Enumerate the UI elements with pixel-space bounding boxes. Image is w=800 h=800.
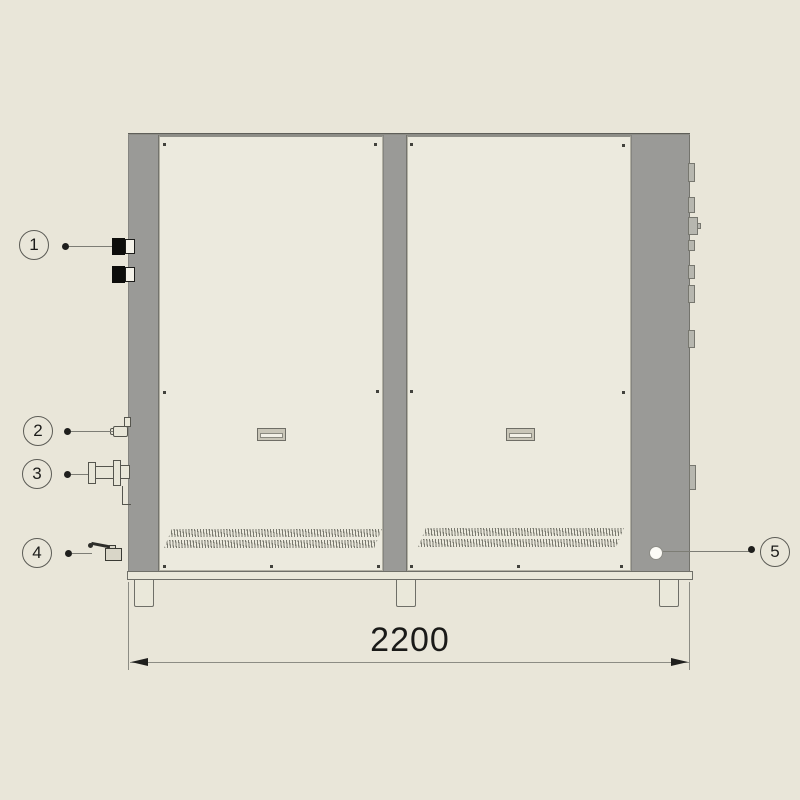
leader-line-2 <box>71 431 113 432</box>
vent-grille-right <box>418 528 624 547</box>
coupling-drain-line-v <box>122 486 123 505</box>
screw <box>622 144 625 147</box>
leader-dot-4 <box>65 550 72 557</box>
coupling-stub <box>120 465 130 479</box>
foot-right <box>659 580 679 607</box>
round-port <box>649 546 663 560</box>
callout-label-1: 1 <box>29 235 38 255</box>
leader-line-3 <box>71 474 88 475</box>
screw <box>163 143 166 146</box>
hinge-tab <box>688 285 695 303</box>
drain-nozzle <box>113 426 128 437</box>
screw <box>376 390 379 393</box>
foot-left <box>134 580 154 607</box>
dimension-line <box>130 662 689 663</box>
screw <box>374 143 377 146</box>
hinge-tab <box>688 197 695 213</box>
leader-line-5 <box>663 551 749 552</box>
dimension-extension-right <box>689 582 690 670</box>
callout-label-2: 2 <box>33 421 42 441</box>
coupling-pipe <box>95 466 115 479</box>
screw <box>517 565 520 568</box>
callout-balloon-2: 2 <box>23 416 53 446</box>
hinge-tab <box>688 330 695 348</box>
screw <box>622 391 625 394</box>
leader-dot-5 <box>748 546 755 553</box>
valve-nub <box>109 545 116 549</box>
callout-label-5: 5 <box>770 542 779 562</box>
callout-balloon-3: 3 <box>22 459 52 489</box>
callout-balloon-1: 1 <box>19 230 49 260</box>
dimension-extension-left <box>128 582 129 670</box>
valve-lever-ball <box>88 543 93 548</box>
connector-block-top <box>112 238 125 255</box>
callout-label-4: 4 <box>32 543 41 563</box>
base-rail <box>127 571 693 580</box>
leader-line-4 <box>72 553 92 554</box>
frame-column-left <box>128 135 159 571</box>
technical-drawing-canvas: 1 2 3 4 5 2200 <box>0 0 800 800</box>
screw <box>410 565 413 568</box>
leader-line-1 <box>67 246 112 247</box>
hinge-tab <box>688 265 695 279</box>
screw <box>410 390 413 393</box>
callout-balloon-5: 5 <box>760 537 790 567</box>
dimension-text: 2200 <box>370 621 450 659</box>
leader-dot-1 <box>62 243 69 250</box>
screw <box>620 565 623 568</box>
screw <box>270 565 273 568</box>
hinge-tab <box>689 465 696 490</box>
screw <box>377 565 380 568</box>
dimension-arrow-left <box>131 658 148 666</box>
foot-center <box>396 580 416 607</box>
screw <box>410 143 413 146</box>
latch-nub <box>697 223 701 229</box>
dimension-value: 2200 <box>330 621 490 660</box>
door-panel-left <box>159 136 383 571</box>
connector-socket-top <box>125 239 135 254</box>
connector-socket-bottom <box>125 267 135 282</box>
dimension-arrow-right <box>671 658 688 666</box>
frame-column-right <box>631 135 690 571</box>
coupling-drain-line-h <box>122 504 131 505</box>
screw <box>163 565 166 568</box>
leader-dot-2 <box>64 428 71 435</box>
screw <box>163 391 166 394</box>
hinge-tab <box>688 163 695 182</box>
hinge-tab <box>688 240 695 251</box>
valve-body <box>105 548 122 561</box>
leader-dot-3 <box>64 471 71 478</box>
frame-column-center <box>383 135 407 571</box>
vent-grille-left <box>164 529 382 548</box>
callout-balloon-4: 4 <box>22 538 52 568</box>
door-handle-right <box>506 428 535 441</box>
door-handle-left <box>257 428 286 441</box>
connector-block-bottom <box>112 266 125 283</box>
callout-label-3: 3 <box>32 464 41 484</box>
door-panel-right <box>407 136 631 571</box>
